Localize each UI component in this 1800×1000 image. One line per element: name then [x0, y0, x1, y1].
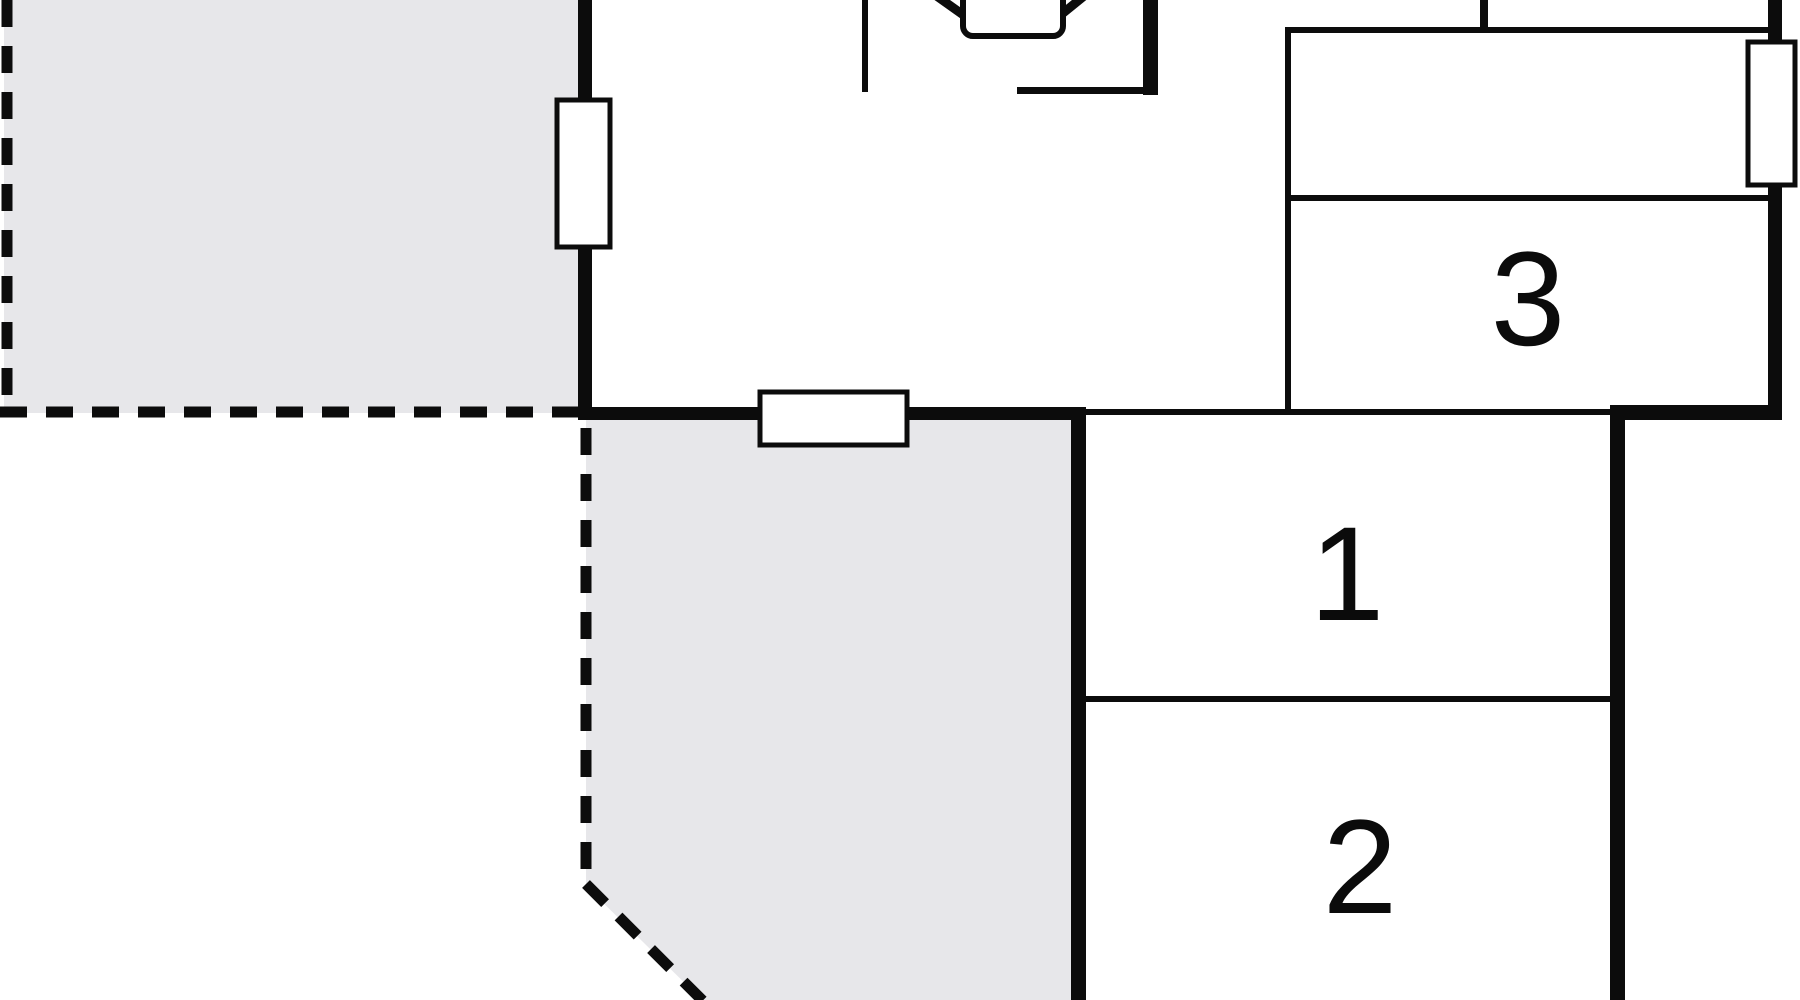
bathroom-bottom-wall	[1017, 87, 1158, 94]
floor-plan-svg: 1 2 3	[0, 0, 1800, 1000]
bathroom-right-wall	[1143, 0, 1158, 95]
window-markers	[557, 42, 1795, 445]
room3-closet-top-line	[1285, 27, 1775, 33]
terrace2-right-wall	[1071, 407, 1086, 1000]
terrace-door-window-icon	[760, 392, 907, 445]
left-wall-window-icon	[557, 100, 610, 247]
main-horizontal-wall-right	[1610, 405, 1782, 420]
toilet-icon	[931, 0, 1089, 36]
room-3-label: 3	[1491, 225, 1566, 374]
toilet-bowl	[963, 0, 1063, 36]
room-2-label: 2	[1323, 793, 1398, 942]
rooms-right-wall	[1610, 405, 1625, 1000]
room1-room2-divider-wall	[1086, 696, 1610, 702]
room-labels: 1 2 3	[1310, 225, 1566, 942]
room3-closet-divider-line	[1285, 195, 1775, 201]
room1-top-wall	[1085, 409, 1610, 415]
terrace-bottom-area	[586, 414, 1071, 1000]
room3-left-wall	[1285, 27, 1291, 412]
terrace-areas	[4, 0, 1071, 1000]
bathroom-left-wall	[862, 0, 868, 92]
terrace-top-left-area	[4, 0, 586, 413]
right-wall-window-icon	[1748, 42, 1795, 185]
top-wall-stub	[1480, 0, 1488, 31]
room-1-label: 1	[1310, 500, 1385, 649]
